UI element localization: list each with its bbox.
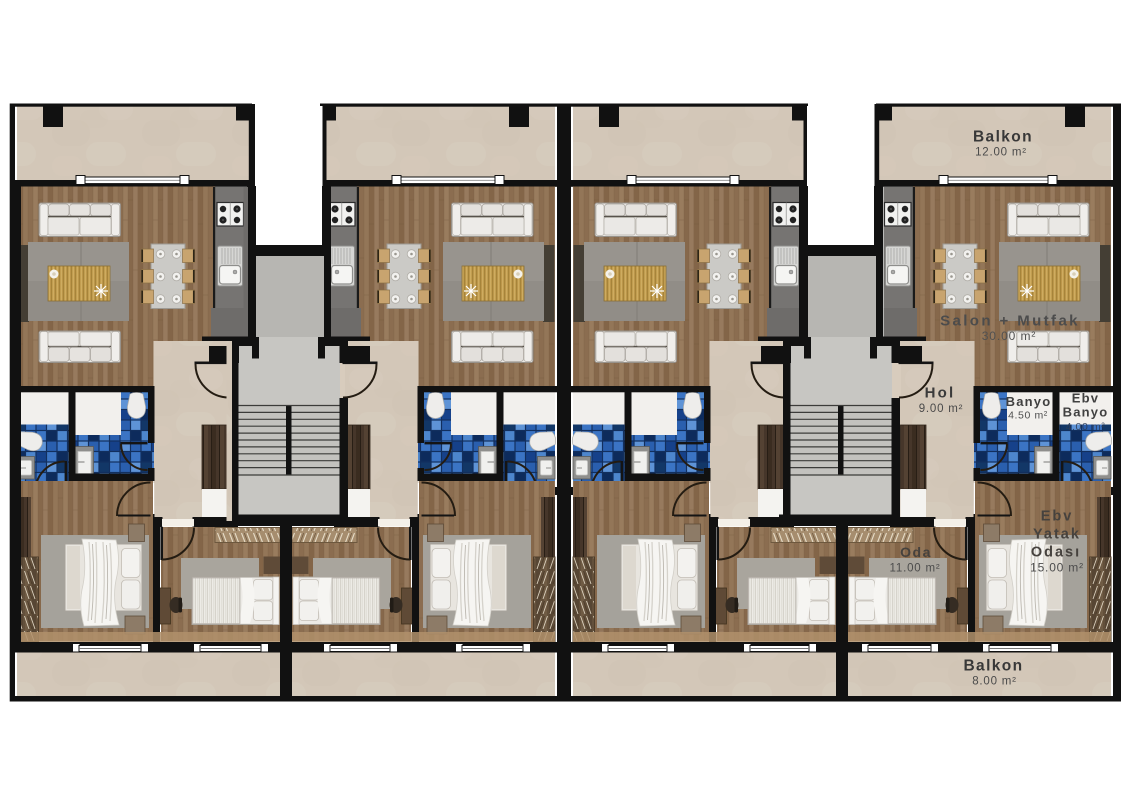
svg-text:Hol: Hol bbox=[925, 385, 956, 402]
svg-text:4.00 m²: 4.00 m² bbox=[1066, 421, 1106, 433]
svg-text:Yatak: Yatak bbox=[1033, 527, 1081, 543]
svg-text:12.00 m²: 12.00 m² bbox=[975, 147, 1027, 159]
svg-text:4.50 m²: 4.50 m² bbox=[1008, 410, 1048, 422]
svg-text:Ebv: Ebv bbox=[1041, 509, 1074, 525]
svg-text:Balkon: Balkon bbox=[963, 658, 1023, 675]
svg-text:15.00 m²: 15.00 m² bbox=[1030, 561, 1084, 575]
svg-text:Banyo: Banyo bbox=[1006, 394, 1052, 409]
svg-text:9.00 m²: 9.00 m² bbox=[919, 403, 964, 415]
svg-text:8.00 m²: 8.00 m² bbox=[972, 676, 1017, 688]
svg-text:Oda: Oda bbox=[900, 544, 932, 560]
svg-text:Salon + Mutfak: Salon + Mutfak bbox=[940, 313, 1080, 330]
svg-text:Odası: Odası bbox=[1031, 545, 1081, 561]
svg-text:30.00 m²: 30.00 m² bbox=[982, 329, 1037, 343]
svg-text:11.00 m²: 11.00 m² bbox=[890, 563, 941, 575]
svg-text:Ebv: Ebv bbox=[1072, 391, 1099, 406]
svg-text:Banyo: Banyo bbox=[1063, 405, 1109, 420]
svg-text:Balkon: Balkon bbox=[973, 129, 1033, 146]
